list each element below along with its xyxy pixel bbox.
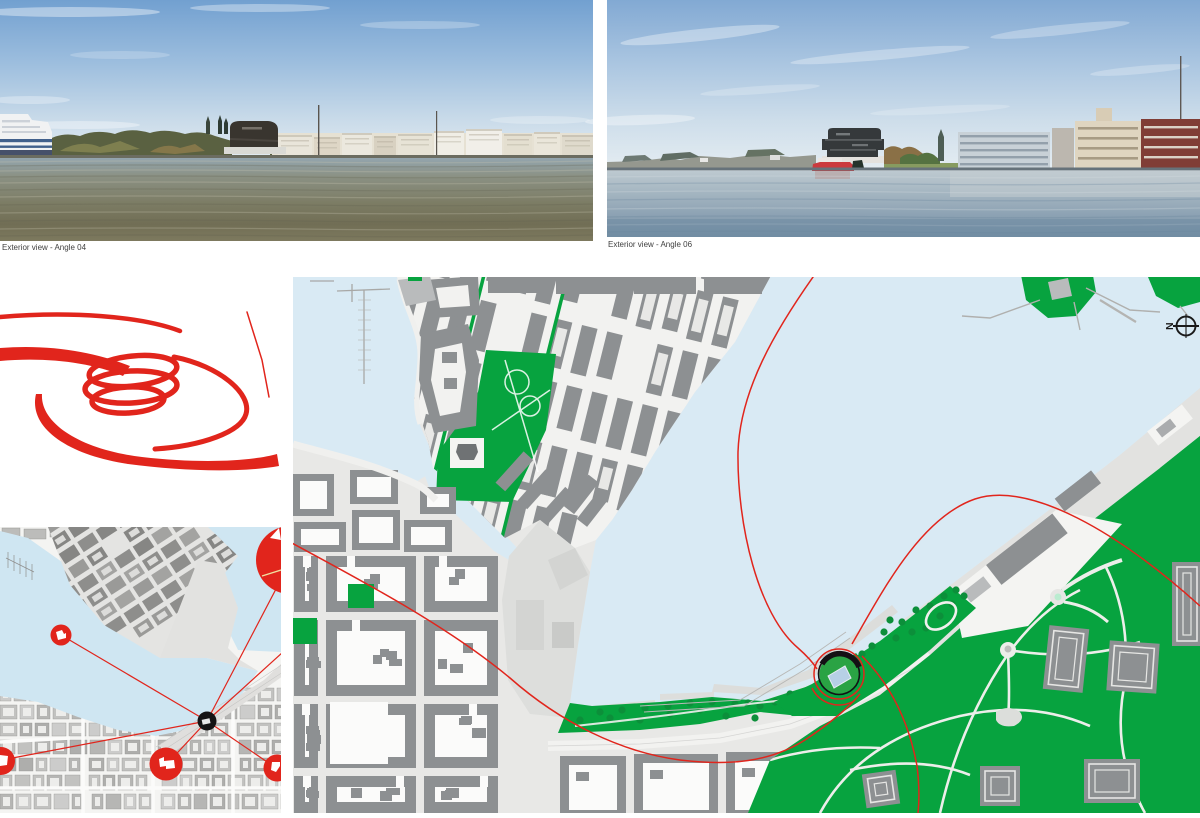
svg-text:Exterior view - Angle 04: Exterior view - Angle 04 (2, 243, 87, 252)
svg-text:Exterior view - Angle 06: Exterior view - Angle 06 (608, 240, 693, 249)
svg-text:N: N (1164, 322, 1176, 330)
